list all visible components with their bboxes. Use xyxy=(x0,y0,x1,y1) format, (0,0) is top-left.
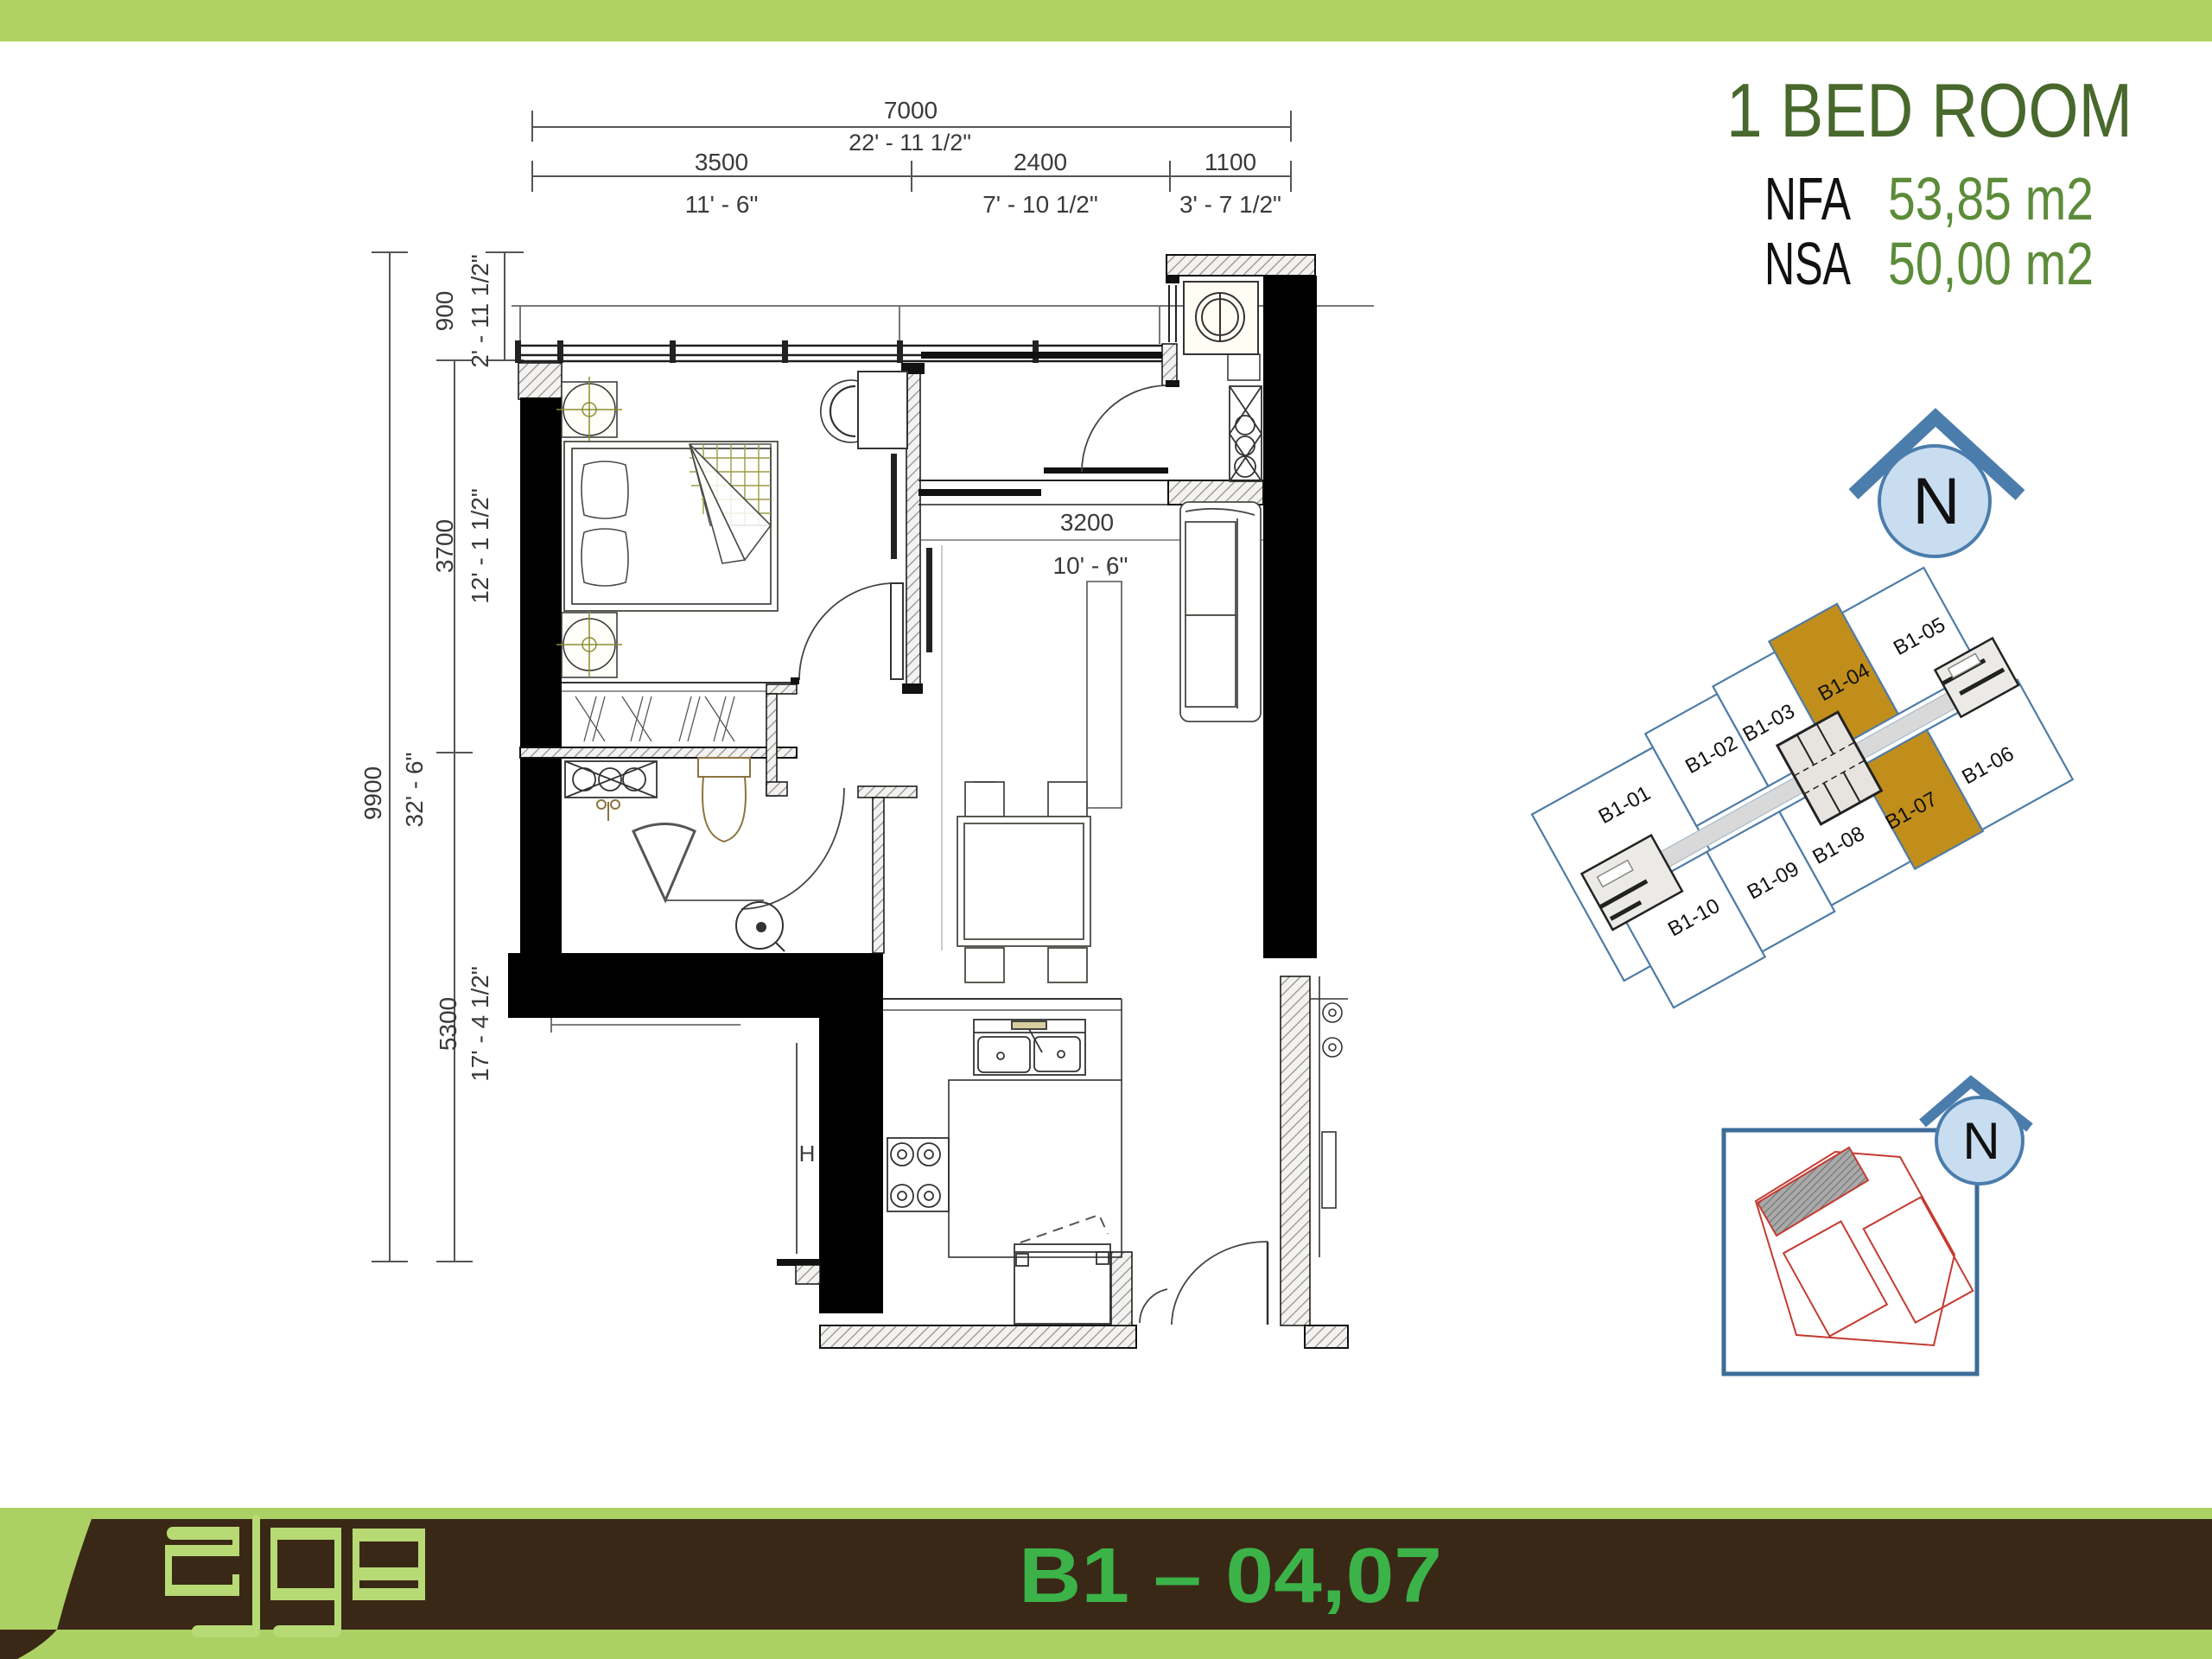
svg-text:2' - 11 1/2": 2' - 11 1/2" xyxy=(467,254,493,368)
svg-text:53,85 m2: 53,85 m2 xyxy=(1888,165,2094,232)
svg-text:12' - 1 1/2": 12' - 1 1/2" xyxy=(467,488,493,604)
svg-text:5300: 5300 xyxy=(435,997,461,1051)
svg-text:NSA: NSA xyxy=(1764,230,1851,297)
svg-text:22' - 11 1/2": 22' - 11 1/2" xyxy=(849,130,971,156)
svg-text:50,00 m2: 50,00 m2 xyxy=(1888,230,2094,297)
svg-text:N: N xyxy=(1962,1112,1999,1170)
svg-text:H: H xyxy=(799,1141,816,1166)
svg-text:1 BED ROOM: 1 BED ROOM xyxy=(1726,67,2133,153)
svg-text:N: N xyxy=(1913,465,1961,538)
svg-text:10' - 6": 10' - 6" xyxy=(1053,552,1128,579)
svg-text:NFA: NFA xyxy=(1764,165,1851,232)
svg-text:9900: 9900 xyxy=(359,766,386,820)
svg-text:11' - 6": 11' - 6" xyxy=(685,191,759,218)
svg-text:B1 – 04,07: B1 – 04,07 xyxy=(1019,1533,1442,1619)
svg-text:1100: 1100 xyxy=(1205,149,1256,175)
svg-text:2400: 2400 xyxy=(1014,149,1067,175)
svg-text:3200: 3200 xyxy=(1060,509,1114,536)
svg-text:900: 900 xyxy=(431,291,458,332)
svg-text:3700: 3700 xyxy=(431,519,458,573)
svg-text:7' - 10 1/2": 7' - 10 1/2" xyxy=(982,191,1098,218)
svg-text:17' - 4 1/2": 17' - 4 1/2" xyxy=(467,966,493,1082)
svg-text:32' - 6": 32' - 6" xyxy=(401,753,428,828)
svg-text:3' - 7 1/2": 3' - 7 1/2" xyxy=(1179,191,1281,218)
svg-text:7000: 7000 xyxy=(884,97,938,124)
svg-text:3500: 3500 xyxy=(695,149,748,175)
